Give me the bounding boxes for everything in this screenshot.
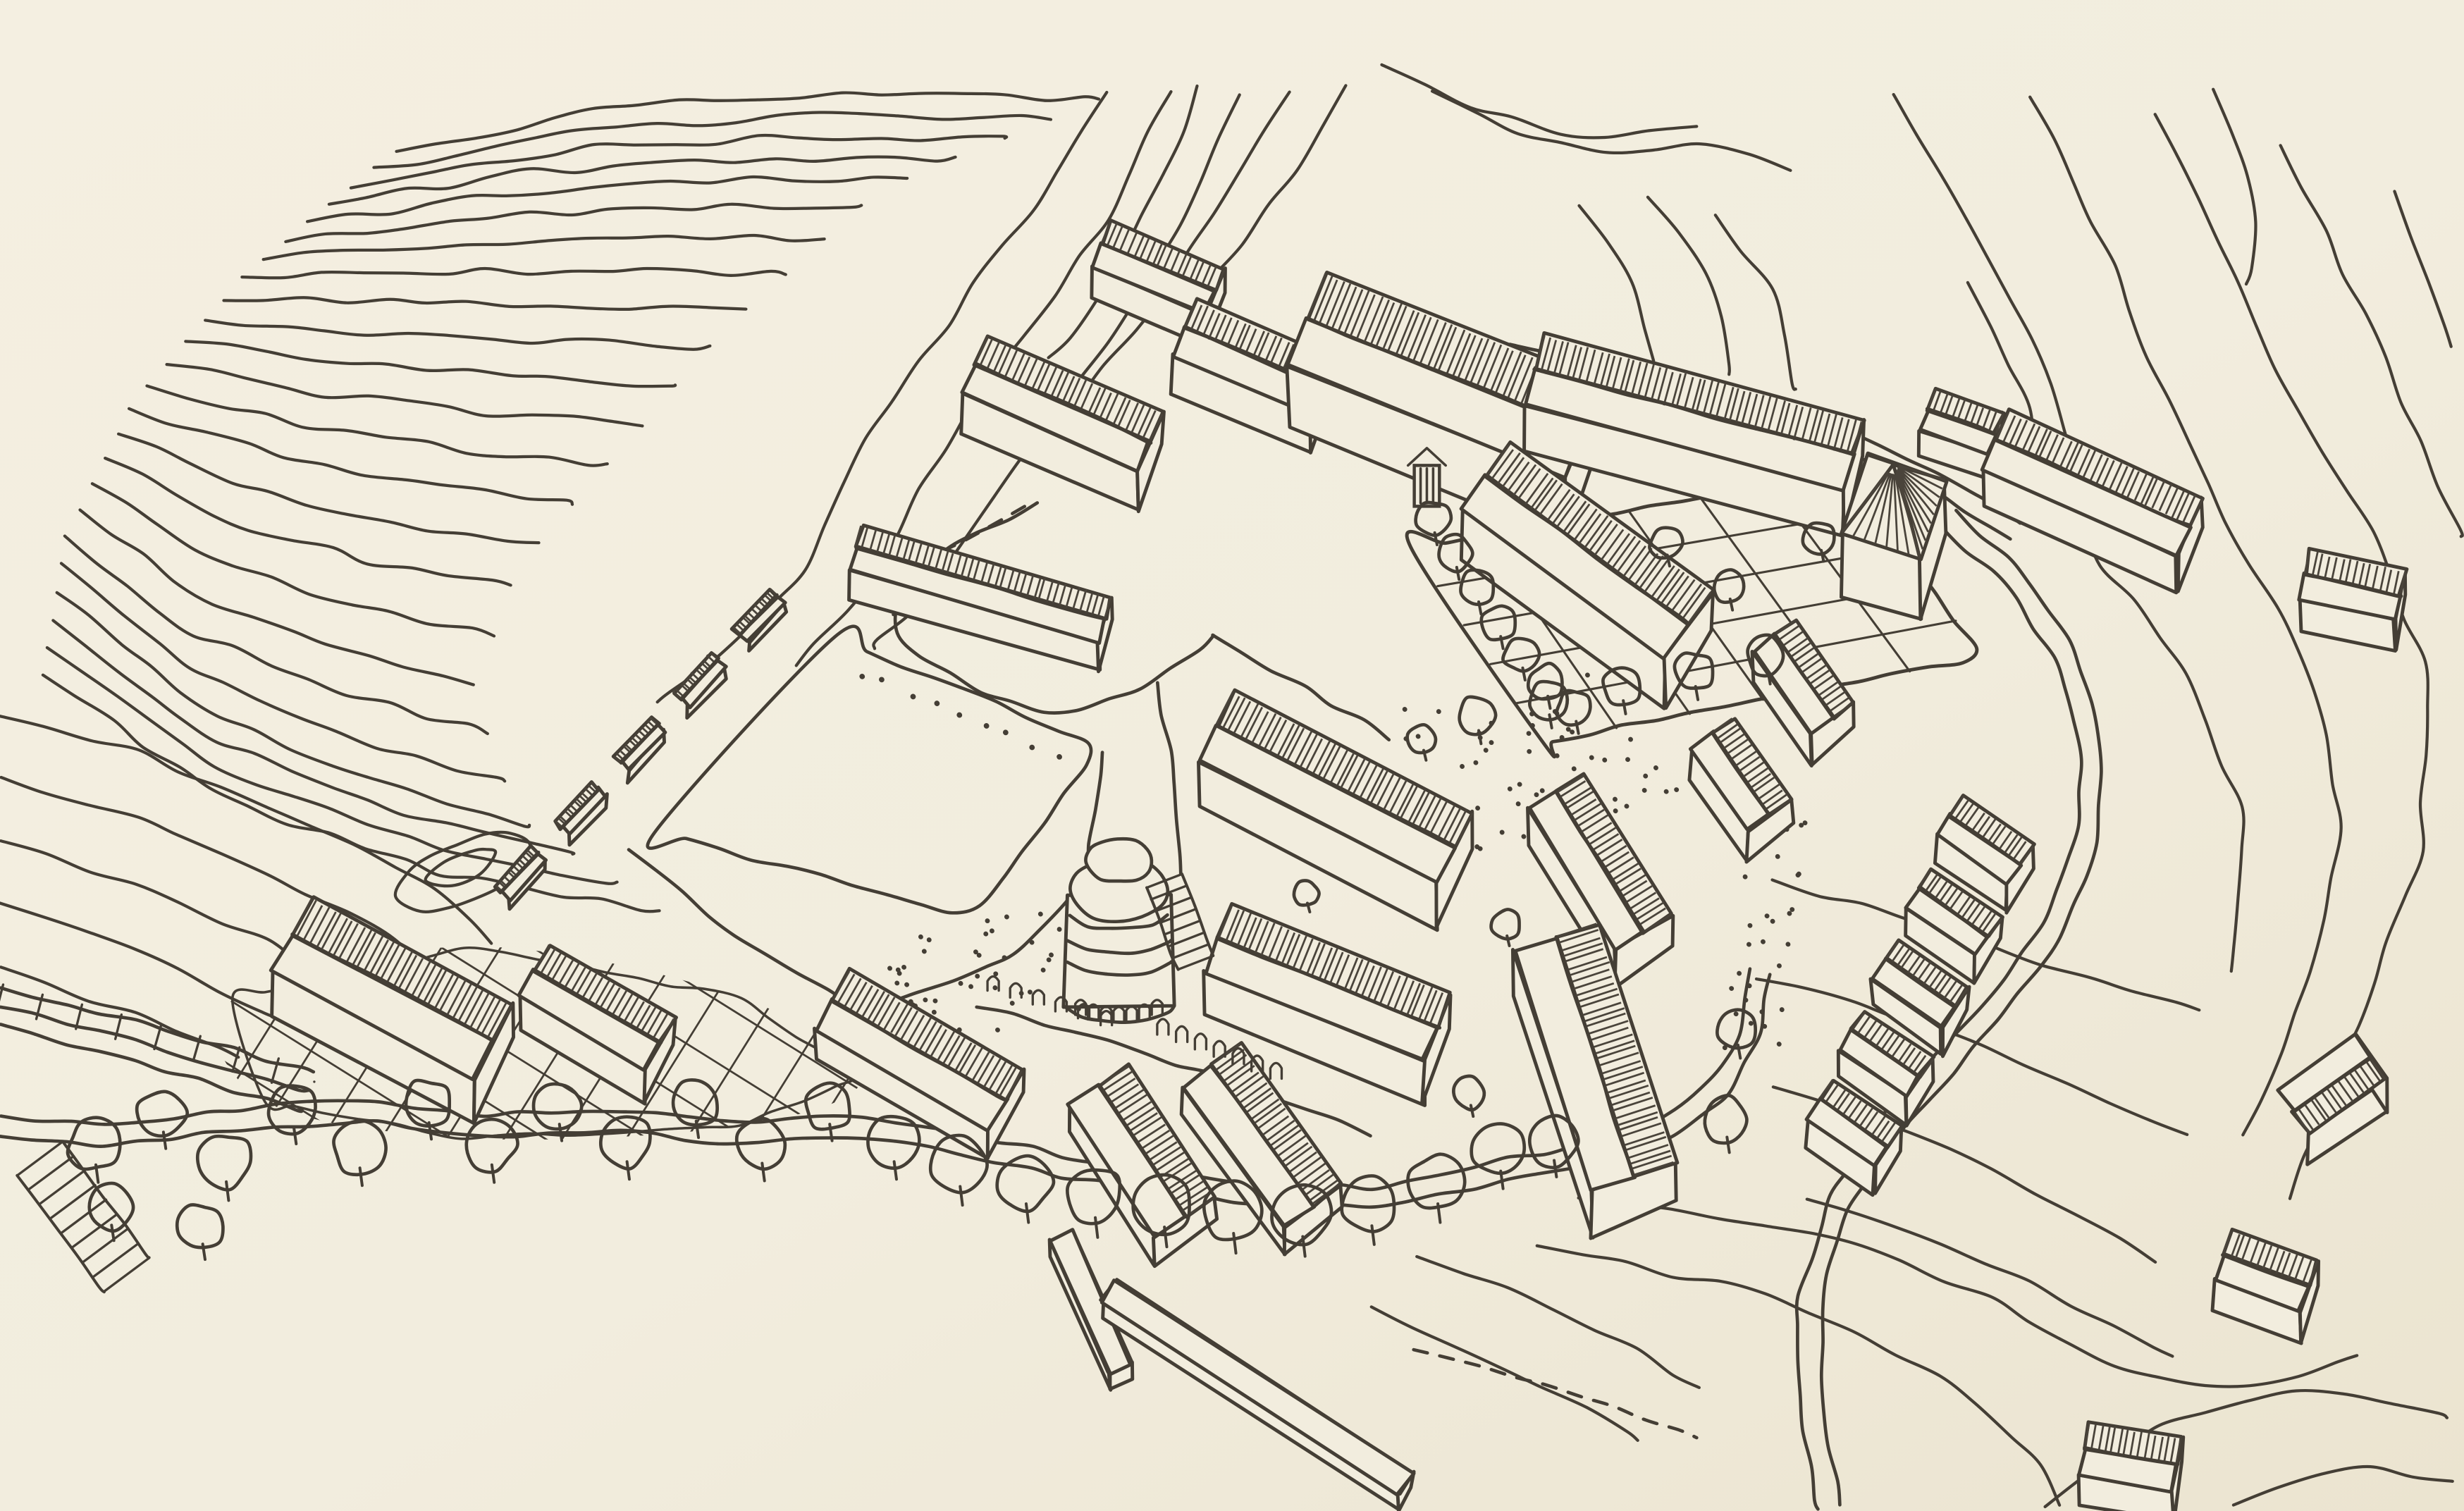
- scanned-sketch-page: [0, 0, 2464, 1511]
- dome-top: [1085, 839, 1152, 881]
- hill-house-s: [2078, 1422, 2183, 1511]
- site-sketch-drawing: [0, 0, 2464, 1511]
